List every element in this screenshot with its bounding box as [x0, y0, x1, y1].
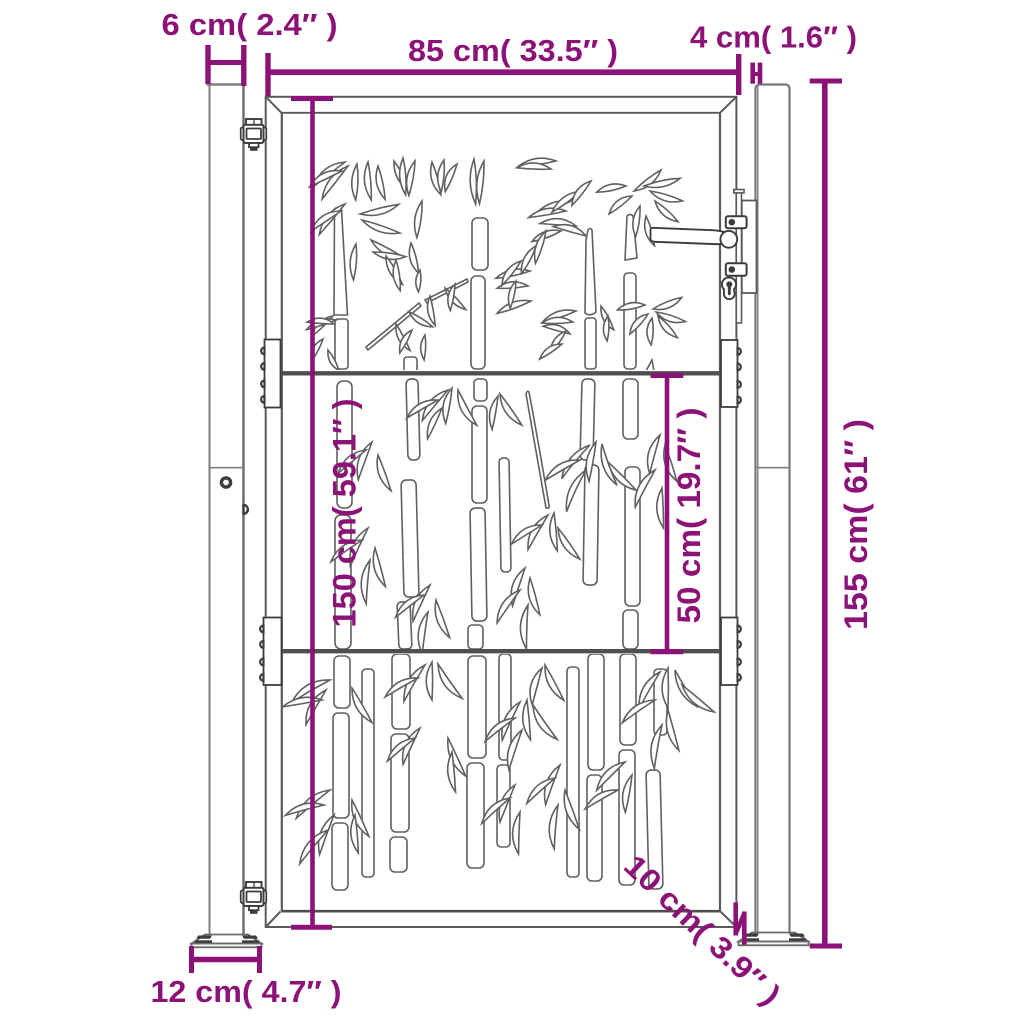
- svg-text:4 cm( 1.6″ ): 4 cm( 1.6″ ): [690, 21, 857, 55]
- svg-text:155 cm( 61″ ): 155 cm( 61″ ): [838, 419, 874, 630]
- svg-text:150 cm( 59.1″ ): 150 cm( 59.1″ ): [327, 399, 363, 628]
- svg-text:12 cm( 4.7″ ): 12 cm( 4.7″ ): [151, 975, 342, 1009]
- svg-text:50 cm( 19.7″ ): 50 cm( 19.7″ ): [671, 408, 707, 624]
- svg-text:6 cm( 2.4″ ): 6 cm( 2.4″ ): [162, 8, 338, 42]
- svg-text:85 cm( 33.5″ ): 85 cm( 33.5″ ): [408, 34, 618, 68]
